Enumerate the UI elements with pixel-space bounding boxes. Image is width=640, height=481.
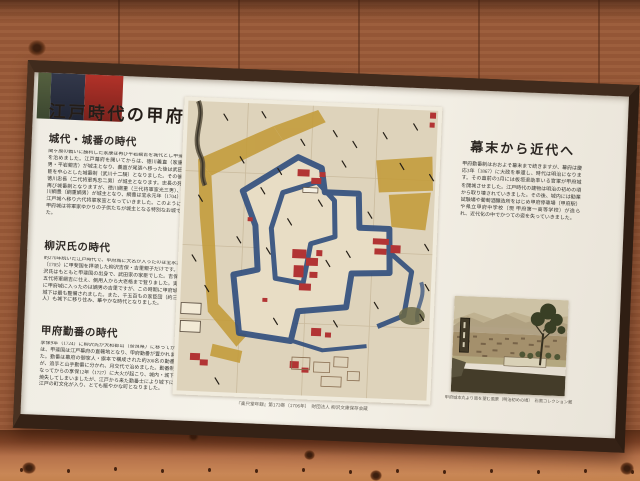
section-heading: 城代・城番の時代 [48, 131, 188, 152]
photo-caption: 甲府城本丸より南を望む風景（明治初めの頃） 石黒コレクション蔵 [441, 394, 575, 405]
historic-photo-illustration [451, 296, 569, 397]
sign-panel: 江戸時代の甲府城 城代・城番の時代 関ヶ原の戦いに勝利した家康は再び平岩親吉を城… [20, 72, 629, 438]
section-body: 約270年続いた江戸時代で、甲府城に大名が入ったのは宝永2年（1705）に甲斐国… [42, 256, 184, 310]
wood-knot [620, 462, 634, 475]
section-body: 享保9年（1724）に柳沢氏が大和郡山（奈良県）に移ってからは、甲斐国は江戸幕府… [39, 341, 181, 395]
section-jodai-joban: 城代・城番の時代 関ヶ原の戦いに勝利した家康は再び平岩親吉を城代とし甲斐国を治め… [45, 131, 189, 241]
wood-knot [22, 462, 36, 474]
section-bakumatsu: 幕末から近代へ 甲府勤番制はおおよそ幕末まで続きますが、幕府は慶応3年（1867… [460, 136, 583, 223]
sign-frame: 江戸時代の甲府城 城代・城番の時代 関ヶ原の戦いに勝利した家康は再び平岩親吉を城… [13, 60, 640, 453]
wood-knot [28, 40, 46, 56]
section-kinban: 甲府勤番の時代 享保9年（1724）に柳沢氏が大和郡山（奈良県）に移ってからは、… [37, 323, 181, 421]
nail-dots [20, 468, 23, 472]
castle-map-illustration [172, 96, 442, 404]
section-body: 関ヶ原の戦いに勝利した家康は再び平岩親吉を城代とし甲斐国を治めました。江戸幕府を… [46, 149, 189, 224]
section-heading: 柳沢氏の時代 [44, 238, 184, 259]
section-heading: 幕末から近代へ [462, 136, 583, 160]
castle-map [172, 96, 442, 404]
page-title: 江戸時代の甲府城 [48, 97, 205, 128]
wood-knot [370, 470, 382, 481]
section-heading: 甲府勤番の時代 [41, 323, 181, 344]
historic-photo [451, 296, 569, 397]
section-yanagisawa: 柳沢氏の時代 約270年続いた江戸時代で、甲府城に大名が入ったのは宝永2年（17… [41, 238, 184, 326]
wood-knot [304, 450, 315, 460]
map-white-tablet [303, 187, 318, 193]
section-body: 甲府勤番制はおおよそ幕末まで続きますが、幕府は慶応3年（1867）に大政を奉還し… [460, 161, 582, 223]
